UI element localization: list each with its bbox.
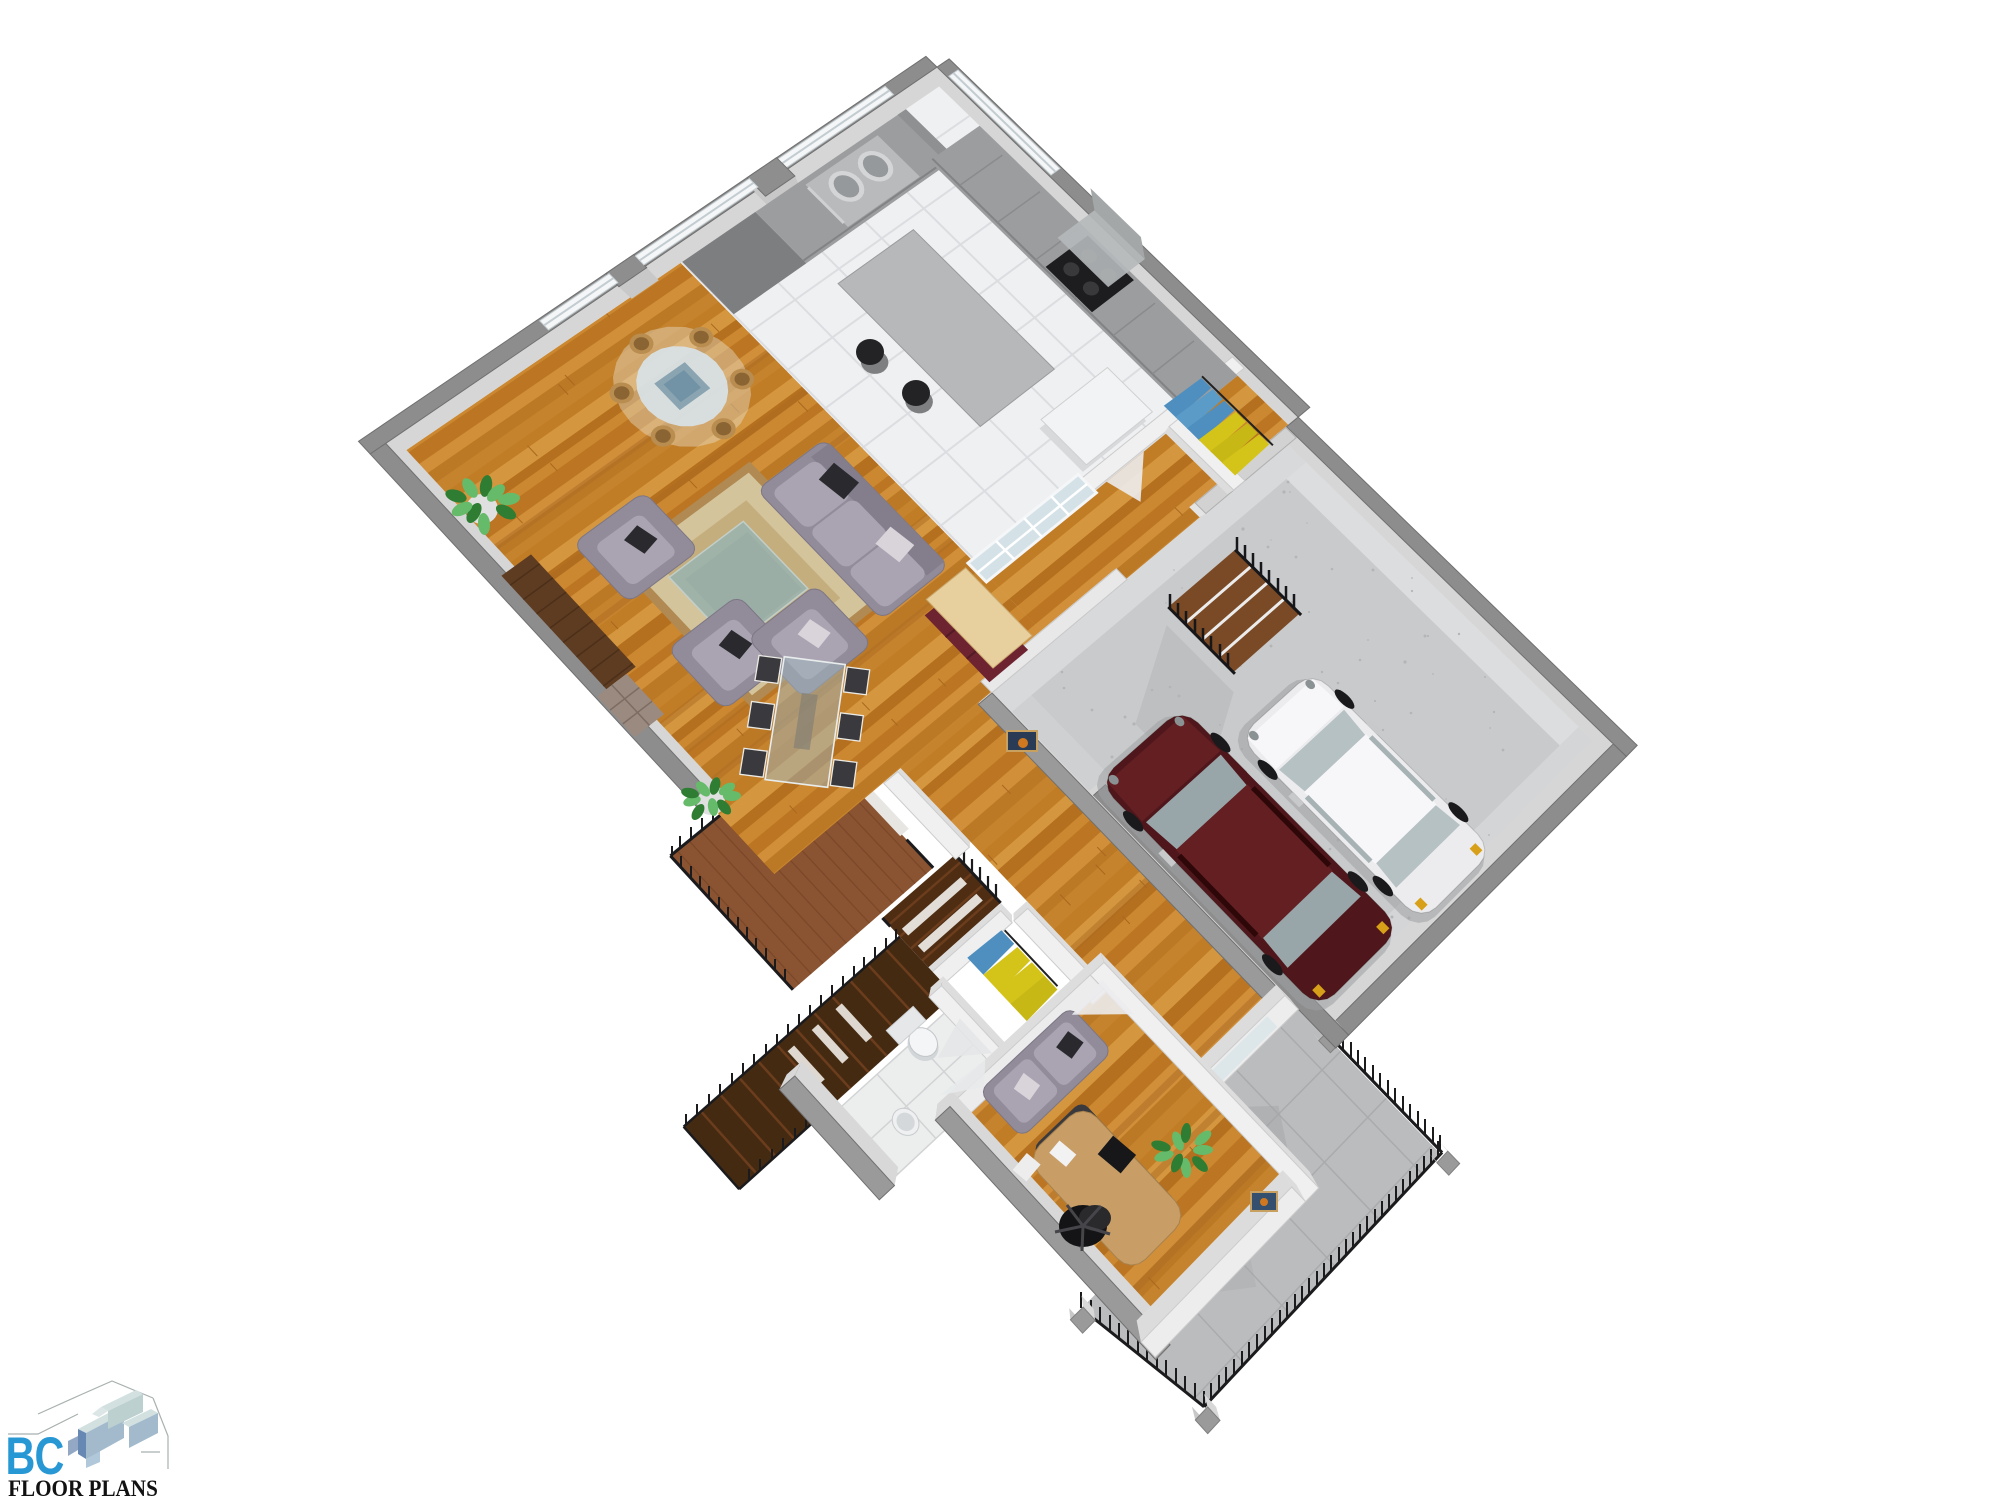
svg-text:FLOOR PLANS: FLOOR PLANS [8,1475,158,1500]
